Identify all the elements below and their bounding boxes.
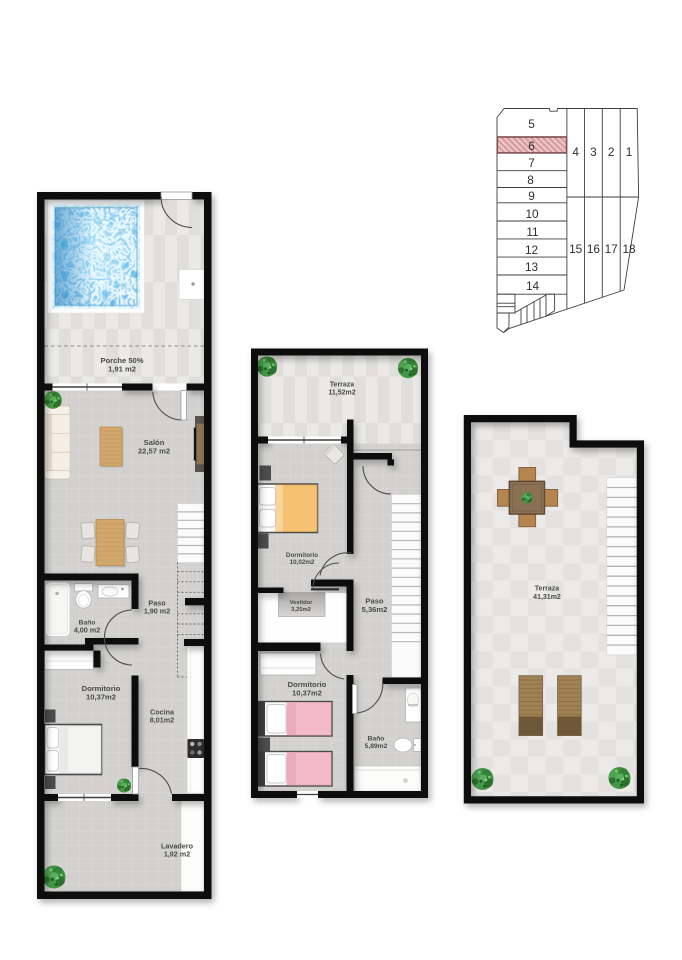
svg-text:11,52m2: 11,52m2 <box>328 390 355 397</box>
svg-text:9: 9 <box>528 189 535 203</box>
svg-text:22,57 m2: 22,57 m2 <box>138 447 170 456</box>
svg-text:11: 11 <box>526 225 538 239</box>
svg-text:Vestidor: Vestidor <box>290 600 314 606</box>
svg-text:4: 4 <box>572 145 579 159</box>
svg-text:3: 3 <box>590 145 597 159</box>
svg-text:Baño: Baño <box>368 736 385 743</box>
svg-text:Terraza: Terraza <box>330 382 354 389</box>
svg-text:Dormitorio: Dormitorio <box>286 552 318 559</box>
svg-text:2: 2 <box>608 145 615 159</box>
svg-text:7: 7 <box>528 156 535 170</box>
svg-text:13: 13 <box>525 260 539 274</box>
svg-text:18: 18 <box>622 242 636 256</box>
svg-text:10,37m2: 10,37m2 <box>292 689 322 698</box>
svg-text:16: 16 <box>587 242 601 256</box>
svg-text:Terraza: Terraza <box>535 586 559 593</box>
svg-text:5,89m2: 5,89m2 <box>365 743 388 750</box>
svg-text:3,25m2: 3,25m2 <box>291 607 311 613</box>
svg-text:1: 1 <box>626 145 633 159</box>
svg-text:5: 5 <box>528 117 535 131</box>
svg-text:14: 14 <box>526 279 540 293</box>
svg-text:5,36m2: 5,36m2 <box>362 605 388 614</box>
svg-text:41,31m2: 41,31m2 <box>533 594 561 601</box>
svg-text:10,02m2: 10,02m2 <box>290 559 315 566</box>
svg-text:1,90 m2: 1,90 m2 <box>144 607 170 616</box>
svg-text:4,00 m2: 4,00 m2 <box>74 626 100 635</box>
svg-text:12: 12 <box>525 243 538 257</box>
svg-text:15: 15 <box>569 242 583 256</box>
svg-text:10: 10 <box>525 207 539 221</box>
svg-text:8,01m2: 8,01m2 <box>150 716 174 725</box>
svg-text:8: 8 <box>527 173 534 187</box>
svg-text:10,37m2: 10,37m2 <box>86 693 116 702</box>
svg-text:1,91 m2: 1,91 m2 <box>108 365 136 374</box>
svg-text:1,92 m2: 1,92 m2 <box>164 850 190 859</box>
svg-text:6: 6 <box>528 139 535 153</box>
svg-text:17: 17 <box>605 242 618 256</box>
